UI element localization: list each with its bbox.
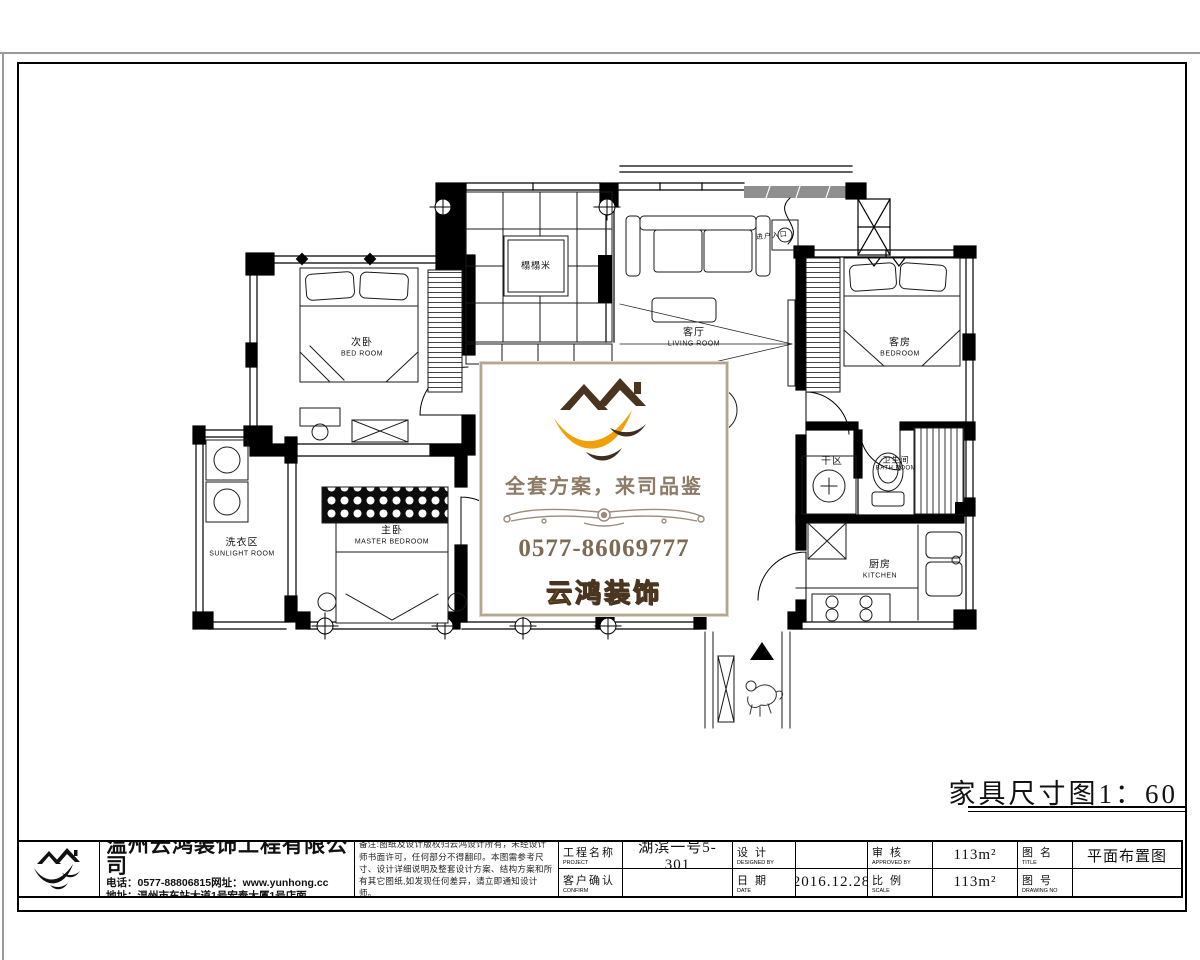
master-headboard-wall: [322, 487, 448, 523]
kitchen-flue: [808, 523, 846, 559]
room-label-guest: 客房BEDROOM: [880, 337, 920, 358]
room-label-dry-area: 干区: [821, 456, 843, 469]
room-label-tatami: 榻榻米: [521, 260, 551, 271]
field-approve-label: 审 核APPROVED BY: [868, 842, 933, 869]
hallway-cabinet: [466, 344, 612, 364]
room-label-master: 主卧MASTER BEDROOM: [353, 525, 431, 546]
field-approve-value: 113m²: [933, 842, 1018, 869]
company-contact: 电话：0577-88806815网址：www.yunhong.cc: [106, 877, 329, 890]
wardrobe-secondary: [428, 270, 462, 392]
field-date-value: 2016.12.28: [796, 869, 868, 896]
company-logo-cell: [19, 842, 100, 896]
caption-underline: [968, 806, 1185, 808]
room-label-kitchen: 厨房KITCHEN: [863, 559, 897, 580]
room-label-bath: 卫生间BATH ROOM: [876, 455, 916, 473]
field-title-label: 图 名TITLE: [1018, 842, 1073, 869]
field-confirm-label: 客户确认CONFIRM: [559, 869, 623, 896]
field-project-value: 湖滨一号5-301: [623, 842, 733, 869]
shower: [914, 428, 965, 514]
room-label-living: 客厅LIVING ROOM: [668, 327, 720, 348]
field-project-label: 工程名称PROJECT: [559, 842, 623, 869]
caption-underline-thin: [968, 811, 1185, 812]
desk: [300, 408, 408, 442]
washer-dryer: [206, 440, 248, 522]
watermark-slogan: 全套方案，来司品鉴: [505, 470, 703, 499]
company-logo-icon: [28, 845, 90, 893]
field-title-value: 平面布置图: [1073, 842, 1181, 869]
company-address: 地址：温州市车站大道1号宏泰大厦1号店面: [106, 890, 307, 896]
company-info-cell: 温州云鸿装饰工程有限公司 电话：0577-88806815网址：www.yunh…: [100, 842, 355, 896]
field-date-label: 日 期DATE: [733, 869, 796, 896]
watermark-phone: 0577-86069777: [518, 535, 689, 563]
watermark-card: 全套方案，来司品鉴 0577-86069777 云鸿装饰: [480, 362, 728, 616]
field-scale-label: 比 例SCALE: [868, 869, 933, 896]
watermark-brand: 云鸿装饰: [546, 573, 662, 610]
dog-sketch: [746, 681, 783, 716]
field-number-label: 图 号DRAWING NO: [1018, 869, 1073, 896]
field-scale-value: 113m²: [933, 869, 1018, 896]
field-number-value: [1073, 869, 1181, 896]
entry-passage: [705, 632, 790, 728]
field-design-value: [796, 842, 868, 869]
drawing-page: 次卧BED ROOM 榻榻米 客厅LIVING ROOM 客房BEDROOM 干…: [0, 0, 1200, 960]
field-design-label: 设 计DESIGNED BY: [733, 842, 796, 869]
room-label-bedroom2: 次卧BED ROOM: [341, 337, 383, 358]
field-confirm-value: [623, 869, 733, 896]
room-label-sunlight: 洗衣区SUNLIGHT ROOM: [209, 537, 275, 558]
title-block: 温州云鸿装饰工程有限公司 电话：0577-88806815网址：www.yunh…: [17, 840, 1183, 898]
ornament-divider: [499, 503, 709, 529]
bed-secondary: [300, 268, 418, 382]
brand-logo-icon: [544, 372, 664, 468]
wardrobe-guest: [806, 258, 840, 392]
company-name: 温州云鸿装饰工程有限公司: [106, 842, 350, 877]
notes-cell: 备注:图纸及设计版权归云鸿设计所有，未经设计师书面许可，任何部分不得翻印。本图需…: [355, 842, 559, 896]
